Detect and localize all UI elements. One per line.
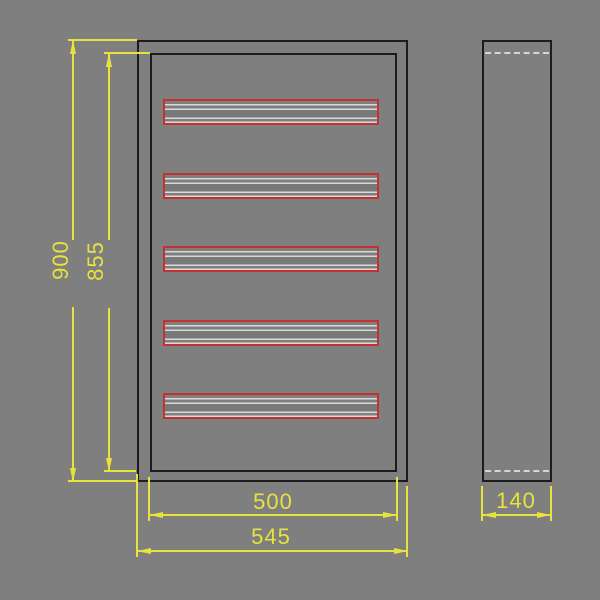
dim-label-inner-height: 855 (85, 231, 107, 291)
dim-extension-line (550, 486, 552, 521)
din-rail-slot (163, 173, 379, 199)
din-rail-slot (163, 99, 379, 125)
dim-extension-line (136, 474, 138, 557)
dim-label-depth: 140 (486, 490, 546, 512)
din-rail-slot (163, 393, 379, 419)
dim-label-inner-width: 500 (243, 491, 303, 513)
dim-extension-line (148, 477, 150, 521)
dim-label-outer-width: 545 (241, 526, 301, 548)
dim-arrow-icon (70, 40, 76, 54)
dim-outer-height-line-upper (72, 40, 74, 240)
dim-inner-height-line-lower (108, 308, 110, 472)
din-rail-slot (163, 320, 379, 346)
dim-outer-width-line (137, 550, 408, 552)
hidden-line-top (485, 52, 549, 54)
dim-arrow-icon (537, 512, 551, 518)
dim-extension-line (104, 470, 136, 472)
dim-arrow-icon (383, 512, 397, 518)
hidden-line-bottom (485, 470, 549, 472)
dim-extension-line (68, 39, 137, 41)
dim-extension-line (104, 52, 150, 54)
dim-extension-line (406, 486, 408, 557)
dim-arrow-icon (149, 512, 163, 518)
side-view-body (482, 40, 552, 482)
dim-arrow-icon (482, 512, 496, 518)
dim-extension-line (481, 486, 483, 521)
dim-inner-height-line-upper (108, 53, 110, 240)
dim-inner-width-line (149, 514, 397, 516)
din-rail-slot (163, 246, 379, 272)
dim-outer-height-line-lower (72, 307, 74, 482)
dim-arrow-icon (137, 548, 151, 554)
dim-extension-line (68, 480, 136, 482)
cad-drawing-canvas: 900 855 500 545 140 (0, 0, 600, 600)
dim-extension-line (396, 477, 398, 521)
dim-label-outer-height: 900 (50, 230, 72, 290)
dim-arrow-icon (106, 53, 112, 67)
